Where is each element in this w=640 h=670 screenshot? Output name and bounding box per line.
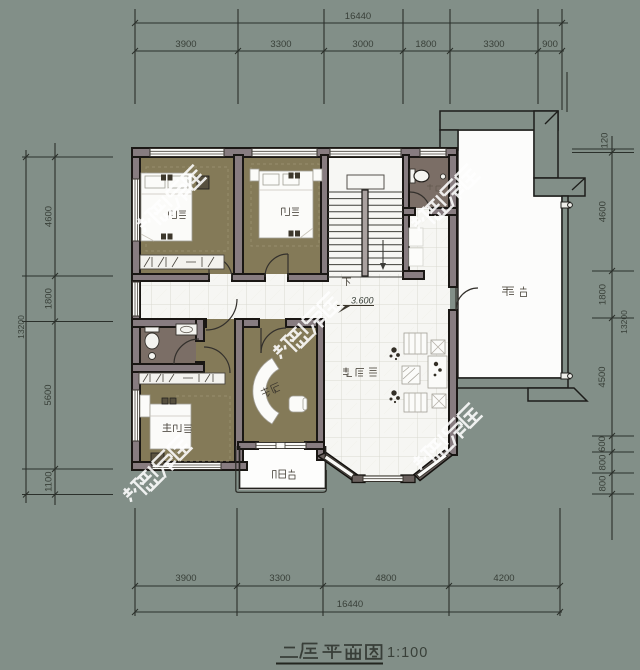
svg-text:600: 600 (597, 436, 608, 452)
svg-text:1100: 1100 (43, 471, 54, 491)
svg-text:900: 900 (542, 39, 558, 50)
svg-text:5600: 5600 (43, 384, 54, 405)
svg-text:13200: 13200 (16, 315, 26, 339)
svg-text:1:100: 1:100 (387, 645, 428, 661)
svg-text:16440: 16440 (345, 11, 371, 22)
svg-text:3300: 3300 (483, 39, 504, 50)
svg-text:3300: 3300 (269, 573, 290, 584)
svg-text:3000: 3000 (352, 39, 373, 50)
svg-text:3.600: 3.600 (351, 296, 374, 306)
svg-text:16440: 16440 (337, 599, 363, 610)
svg-text:800: 800 (598, 455, 609, 471)
svg-text:3900: 3900 (175, 573, 196, 584)
svg-text:1800: 1800 (598, 284, 609, 305)
svg-text:1800: 1800 (415, 39, 436, 50)
svg-text:4600: 4600 (44, 206, 55, 227)
svg-text:4600: 4600 (597, 201, 608, 222)
svg-text:800: 800 (598, 476, 609, 492)
svg-text:13200: 13200 (619, 310, 629, 334)
svg-text:3900: 3900 (175, 39, 196, 50)
svg-text:4500: 4500 (597, 366, 608, 387)
svg-text:4200: 4200 (493, 573, 514, 584)
svg-text:1800: 1800 (43, 288, 54, 309)
svg-text:120: 120 (600, 133, 611, 149)
svg-text:4800: 4800 (375, 573, 396, 584)
svg-text:3300: 3300 (270, 39, 291, 50)
